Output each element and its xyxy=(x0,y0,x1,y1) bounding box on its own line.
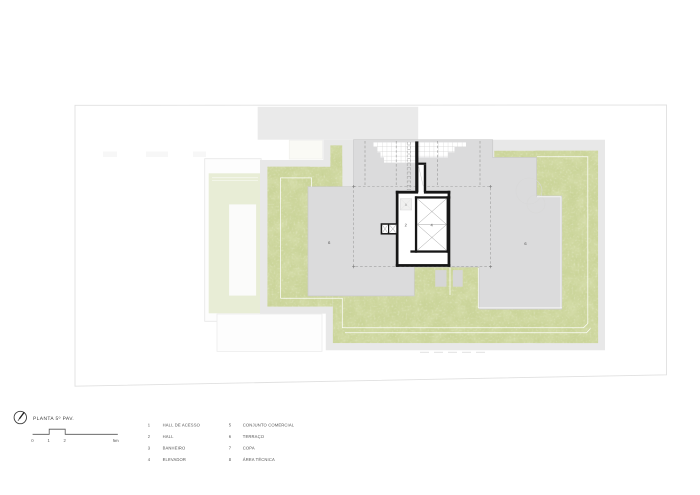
svg-text:COPA: COPA xyxy=(243,446,255,451)
svg-text:CONJUNTO COMERCIAL: CONJUNTO COMERCIAL xyxy=(243,422,295,427)
svg-text:BANHEIRO: BANHEIRO xyxy=(163,446,186,451)
svg-text:3: 3 xyxy=(405,203,407,207)
svg-text:ELEVADOR: ELEVADOR xyxy=(163,457,186,462)
svg-text:5m: 5m xyxy=(113,438,119,443)
svg-text:HALL: HALL xyxy=(163,434,175,439)
svg-text:ÁREA TÉCNICA: ÁREA TÉCNICA xyxy=(243,457,275,462)
svg-text:PLANTA 5º PAV.: PLANTA 5º PAV. xyxy=(33,416,74,422)
svg-text:HALL DE ACESSO: HALL DE ACESSO xyxy=(163,422,201,427)
svg-text:TERRAÇO: TERRAÇO xyxy=(243,434,265,439)
